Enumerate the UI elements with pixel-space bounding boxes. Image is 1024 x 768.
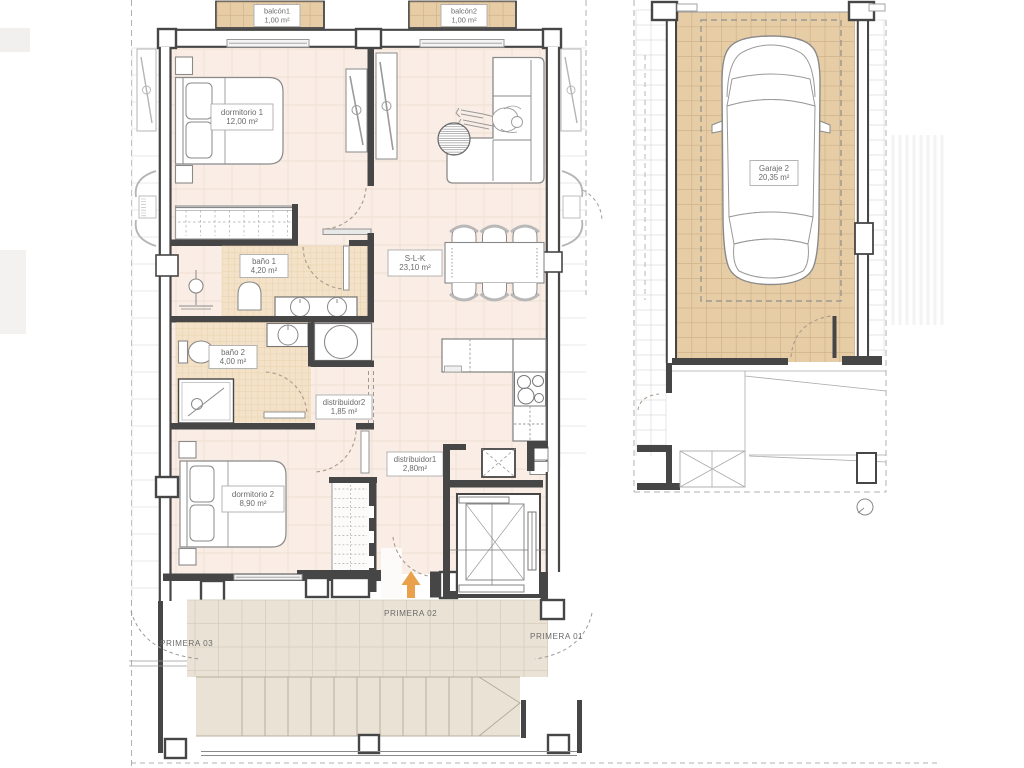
svg-text:23,10 m²: 23,10 m² (399, 263, 431, 272)
svg-text:4,00 m²: 4,00 m² (220, 357, 247, 366)
svg-text:PRIMERA 03: PRIMERA 03 (160, 639, 213, 648)
svg-text:S-L-K: S-L-K (405, 254, 426, 263)
svg-text:2,80m²: 2,80m² (403, 464, 428, 473)
svg-text:dormitorio 1: dormitorio 1 (221, 108, 264, 117)
svg-text:balcón1: balcón1 (264, 6, 290, 15)
svg-text:PRIMERA 01: PRIMERA 01 (530, 632, 583, 641)
svg-text:20,35 m²: 20,35 m² (759, 173, 790, 182)
svg-text:1,00 m²: 1,00 m² (264, 16, 290, 25)
svg-text:1,85 m²: 1,85 m² (331, 407, 358, 416)
svg-text:Garaje 2: Garaje 2 (759, 164, 789, 173)
svg-text:balcón2: balcón2 (451, 6, 477, 15)
svg-text:12,00 m²: 12,00 m² (226, 117, 258, 126)
svg-text:4,20 m²: 4,20 m² (251, 266, 278, 275)
svg-text:distribuidor2: distribuidor2 (323, 398, 365, 407)
svg-text:baño 2: baño 2 (221, 348, 245, 357)
svg-text:PRIMERA 02: PRIMERA 02 (384, 609, 437, 618)
svg-text:baño 1: baño 1 (252, 257, 276, 266)
svg-text:distribuidor1: distribuidor1 (394, 455, 436, 464)
svg-text:8,90 m²: 8,90 m² (239, 499, 266, 508)
svg-text:1,00 m²: 1,00 m² (451, 16, 477, 25)
svg-text:dormitorio 2: dormitorio 2 (232, 490, 275, 499)
